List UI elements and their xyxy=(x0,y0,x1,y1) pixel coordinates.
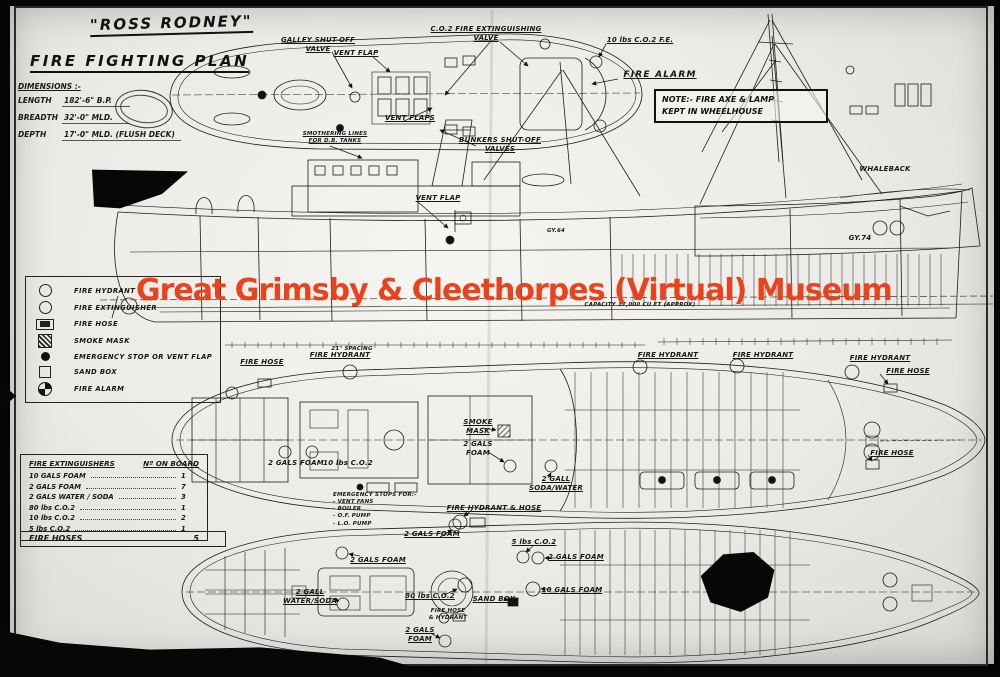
legend-item-fire-hose: FIRE HOSE xyxy=(36,319,214,330)
label-fire-hose-maindeck-fwd: FIRE HOSE xyxy=(886,367,929,376)
label-vent-flaps: VENT FLAPS xyxy=(385,114,435,123)
dimensions-heading: DIMENSIONS :- xyxy=(18,82,213,91)
label-fire-hydrant-maindeck-4: FIRE HYDRANT xyxy=(850,354,911,363)
scan-edge-right xyxy=(994,0,1000,677)
label-smoke-mask: SMOKE MASK xyxy=(463,418,492,436)
label-registration-bow: GY.74 xyxy=(849,234,872,243)
fire-alarm-symbol-icon xyxy=(38,382,52,396)
fire-hoses-row: FIRE HOSES 5 xyxy=(20,531,226,547)
table-row: 10 lbs C.O.22 xyxy=(29,514,199,522)
fire-extinguishers-table: FIRE EXTINGUISHERS Nº ON BOARD 10 GALS F… xyxy=(20,454,208,541)
label-fire-hydrant-hose-maindeck: FIRE HYDRANT & HOSE xyxy=(447,504,542,513)
label-fire-hose-maindeck-stbd: FIRE HOSE xyxy=(870,449,913,458)
scan-edge-top xyxy=(0,0,1000,6)
label-fire-hydrant-maindeck-2: FIRE HYDRANT xyxy=(638,351,699,360)
note-box: NOTE:- FIRE AXE & LAMP KEPT IN WHEELHOUS… xyxy=(654,89,828,123)
ship-name: "ROSS RODNEY" xyxy=(90,12,253,37)
legend-item-fire-alarm: FIRE ALARM xyxy=(36,382,214,396)
dimension-row-depth: DEPTH 17'-0" MLD. (FLUSH DECK) xyxy=(18,130,213,141)
table-row: 80 lbs C.O.21 xyxy=(29,504,199,512)
label-10gal-foam-lower: 10 GALS FOAM xyxy=(542,586,603,595)
label-fire-hydrant-maindeck-1: FIRE HYDRANT xyxy=(310,351,371,360)
scanned-fire-fighting-plan: "ROSS RODNEY" FIRE FIGHTING PLAN DIMENSI… xyxy=(0,0,1000,677)
label-2gal-soda-water: 2 GALL SODA/WATER xyxy=(529,475,583,493)
label-hold-capacity: CAPACITY 17,000 CU FT (APPROX) xyxy=(585,302,696,309)
label-2gal-foam-lower-2: 2 GALS FOAM xyxy=(548,553,604,562)
table-row: 10 GALS FOAM1 xyxy=(29,472,199,480)
legend-item-emergency-stop: EMERGENCY STOP OR VENT FLAP xyxy=(36,352,214,361)
label-2gal-foam-lower-1: 2 GALS FOAM xyxy=(404,530,460,539)
sand-box-symbol-icon xyxy=(39,366,51,378)
scan-edge-left xyxy=(0,0,10,677)
legend-item-sand-box: SAND BOX xyxy=(36,366,214,378)
fire-hose-symbol-icon xyxy=(36,319,54,330)
fire-extinguisher-symbol-icon xyxy=(39,301,52,314)
legend-item-fire-extinguisher: FIRE EXTINGUISHER xyxy=(36,301,214,314)
smoke-mask-symbol-icon xyxy=(38,334,52,348)
label-fire-alarm: FIRE ALARM xyxy=(623,70,696,82)
label-5lb-co2-lower: 5 lbs C.O.2 xyxy=(512,538,557,547)
label-registration-boat: GY.64 xyxy=(547,228,565,235)
label-2gal-foam-maindeck-port: 2 GALS FOAM xyxy=(463,440,492,458)
label-2gal-foam-lower-4: 2 GALS FOAM xyxy=(405,626,434,644)
label-whaleback: WHALEBACK xyxy=(859,165,910,174)
legend-item-fire-hydrant: FIRE HYDRANT xyxy=(36,284,214,297)
plan-title: FIRE FIGHTING PLAN xyxy=(30,52,249,73)
label-fire-hose-maindeck-aft: FIRE HOSE xyxy=(240,358,283,367)
dimension-row-breadth: BREADTH 32'-0" MLD. xyxy=(18,113,213,124)
table-row: 2 GALS FOAM7 xyxy=(29,483,199,491)
legend-item-smoke-mask: SMOKE MASK xyxy=(36,334,214,348)
table-heading-right: Nº ON BOARD xyxy=(143,459,199,468)
label-bunkers-shutoff-valves: BUNKERS SHUT-OFF VALVES xyxy=(459,136,541,154)
label-sand-box: SAND BOX xyxy=(473,595,516,604)
fire-hydrant-symbol-icon xyxy=(39,284,52,297)
dimensions-block: DIMENSIONS :- LENGTH 182'-6" B.P. BREADT… xyxy=(18,82,213,147)
label-2gal-foam-lower-3: 2 GALS FOAM xyxy=(350,556,406,565)
label-10lb-co2-fe: 10 lbs C.O.2 F.E. xyxy=(607,36,674,45)
table-row: 2 GALS WATER / SODA3 xyxy=(29,493,199,501)
label-2gal-water-soda-lower: 2 GALL WATER/SODA xyxy=(283,588,337,606)
label-smothering-lines: SMOTHERING LINES FOR D.B. TANKS xyxy=(303,131,368,145)
emergency-stop-symbol-icon xyxy=(41,352,50,361)
label-vent-flap-profile: VENT FLAP xyxy=(416,194,461,203)
label-vent-flap-top: VENT FLAP xyxy=(334,49,379,58)
label-2gal-foam-maindeck-aft: 2 GALS FOAM xyxy=(268,459,324,468)
label-fire-hose-hydrant-lower: FIRE HOSE & HYDRANT xyxy=(429,608,468,622)
label-co2-extinguishing-valve: C.O.2 FIRE EXTINGUISHING VALVE xyxy=(431,25,542,43)
symbol-legend: FIRE HYDRANT FIRE EXTINGUISHER FIRE HOSE… xyxy=(25,276,221,403)
label-emergency-stops: EMERGENCY STOPS FOR:- - VENT FANS - BOIL… xyxy=(333,492,417,528)
label-80lb-co2-lower: 80 lbs C.O.2 xyxy=(405,592,455,601)
label-10lb-co2-maindeck: 10 lbs C.O.2 xyxy=(323,459,373,468)
table-heading-left: FIRE EXTINGUISHERS xyxy=(29,459,115,468)
label-fire-hydrant-maindeck-3: FIRE HYDRANT xyxy=(733,351,794,360)
